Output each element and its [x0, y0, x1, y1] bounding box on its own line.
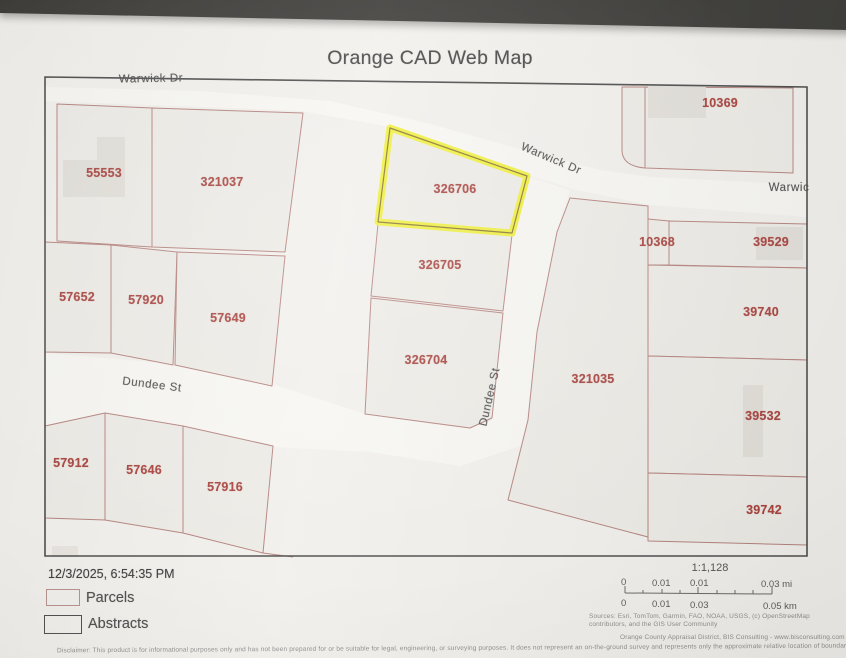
scale-mi-2: 0.01 — [690, 578, 709, 589]
scale-mi-1: 0.01 — [652, 578, 671, 589]
parcel-label-39740: 39740 — [743, 305, 779, 319]
parcel-label-326706: 326706 — [434, 182, 477, 196]
legend-label-parcels: Parcels — [86, 590, 134, 606]
parcel-label-57646: 57646 — [126, 463, 162, 477]
parcel-label-57916: 57916 — [207, 480, 243, 494]
scale-km-1: 0.01 — [652, 599, 671, 610]
map-timestamp: 12/3/2025, 6:54:35 PM — [48, 567, 174, 581]
parcel-label-57912: 57912 — [53, 456, 89, 470]
map-canvas: 55553 321037 10369 326706 57652 57920 57… — [0, 0, 846, 658]
scale-km-2: 0.03 — [690, 600, 709, 611]
scale-mi-3: 0.03 mi — [761, 579, 792, 590]
parcel-label-10369: 10369 — [702, 96, 738, 110]
sources-line-1: Sources: Esri, TomTom, Garmin, FAO, NOAA… — [589, 613, 810, 620]
scale-km-3: 0.05 km — [763, 601, 797, 612]
parcel-label-39742: 39742 — [746, 503, 782, 517]
street-label-warwick-dr-top: Warwick Dr — [119, 72, 184, 85]
parcel-label-39529: 39529 — [753, 235, 789, 249]
parcel-label-57652: 57652 — [59, 290, 95, 304]
parcel-label-10368: 10368 — [639, 235, 675, 249]
credit-line: Orange County Appraisal District, BIS Co… — [620, 634, 845, 641]
legend-swatch-parcels — [46, 589, 80, 606]
parcel-label-39532: 39532 — [745, 409, 781, 423]
street-label-warwick-clipped: Warwic — [769, 182, 810, 194]
scale-km-0: 0 — [621, 598, 626, 609]
parcel-label-57920: 57920 — [128, 293, 164, 307]
parcel-label-326705: 326705 — [419, 258, 462, 272]
sources-line-2: contributors, and the GIS User Community — [589, 621, 717, 628]
legend-label-abstracts: Abstracts — [88, 616, 148, 632]
parcel-label-321035: 321035 — [572, 372, 615, 386]
parcel-label-57649: 57649 — [210, 311, 246, 325]
parcel-label-55553: 55553 — [86, 166, 122, 180]
legend-swatch-abstracts — [44, 615, 82, 634]
scale-mi-0: 0 — [621, 577, 626, 588]
parcel-label-326704: 326704 — [405, 353, 448, 367]
printed-map-paper: Orange CAD Web Map — [0, 0, 846, 658]
parcel-label-321037: 321037 — [201, 175, 244, 189]
parcels-layer — [45, 87, 807, 557]
scale-ratio: 1:1,128 — [665, 562, 755, 574]
